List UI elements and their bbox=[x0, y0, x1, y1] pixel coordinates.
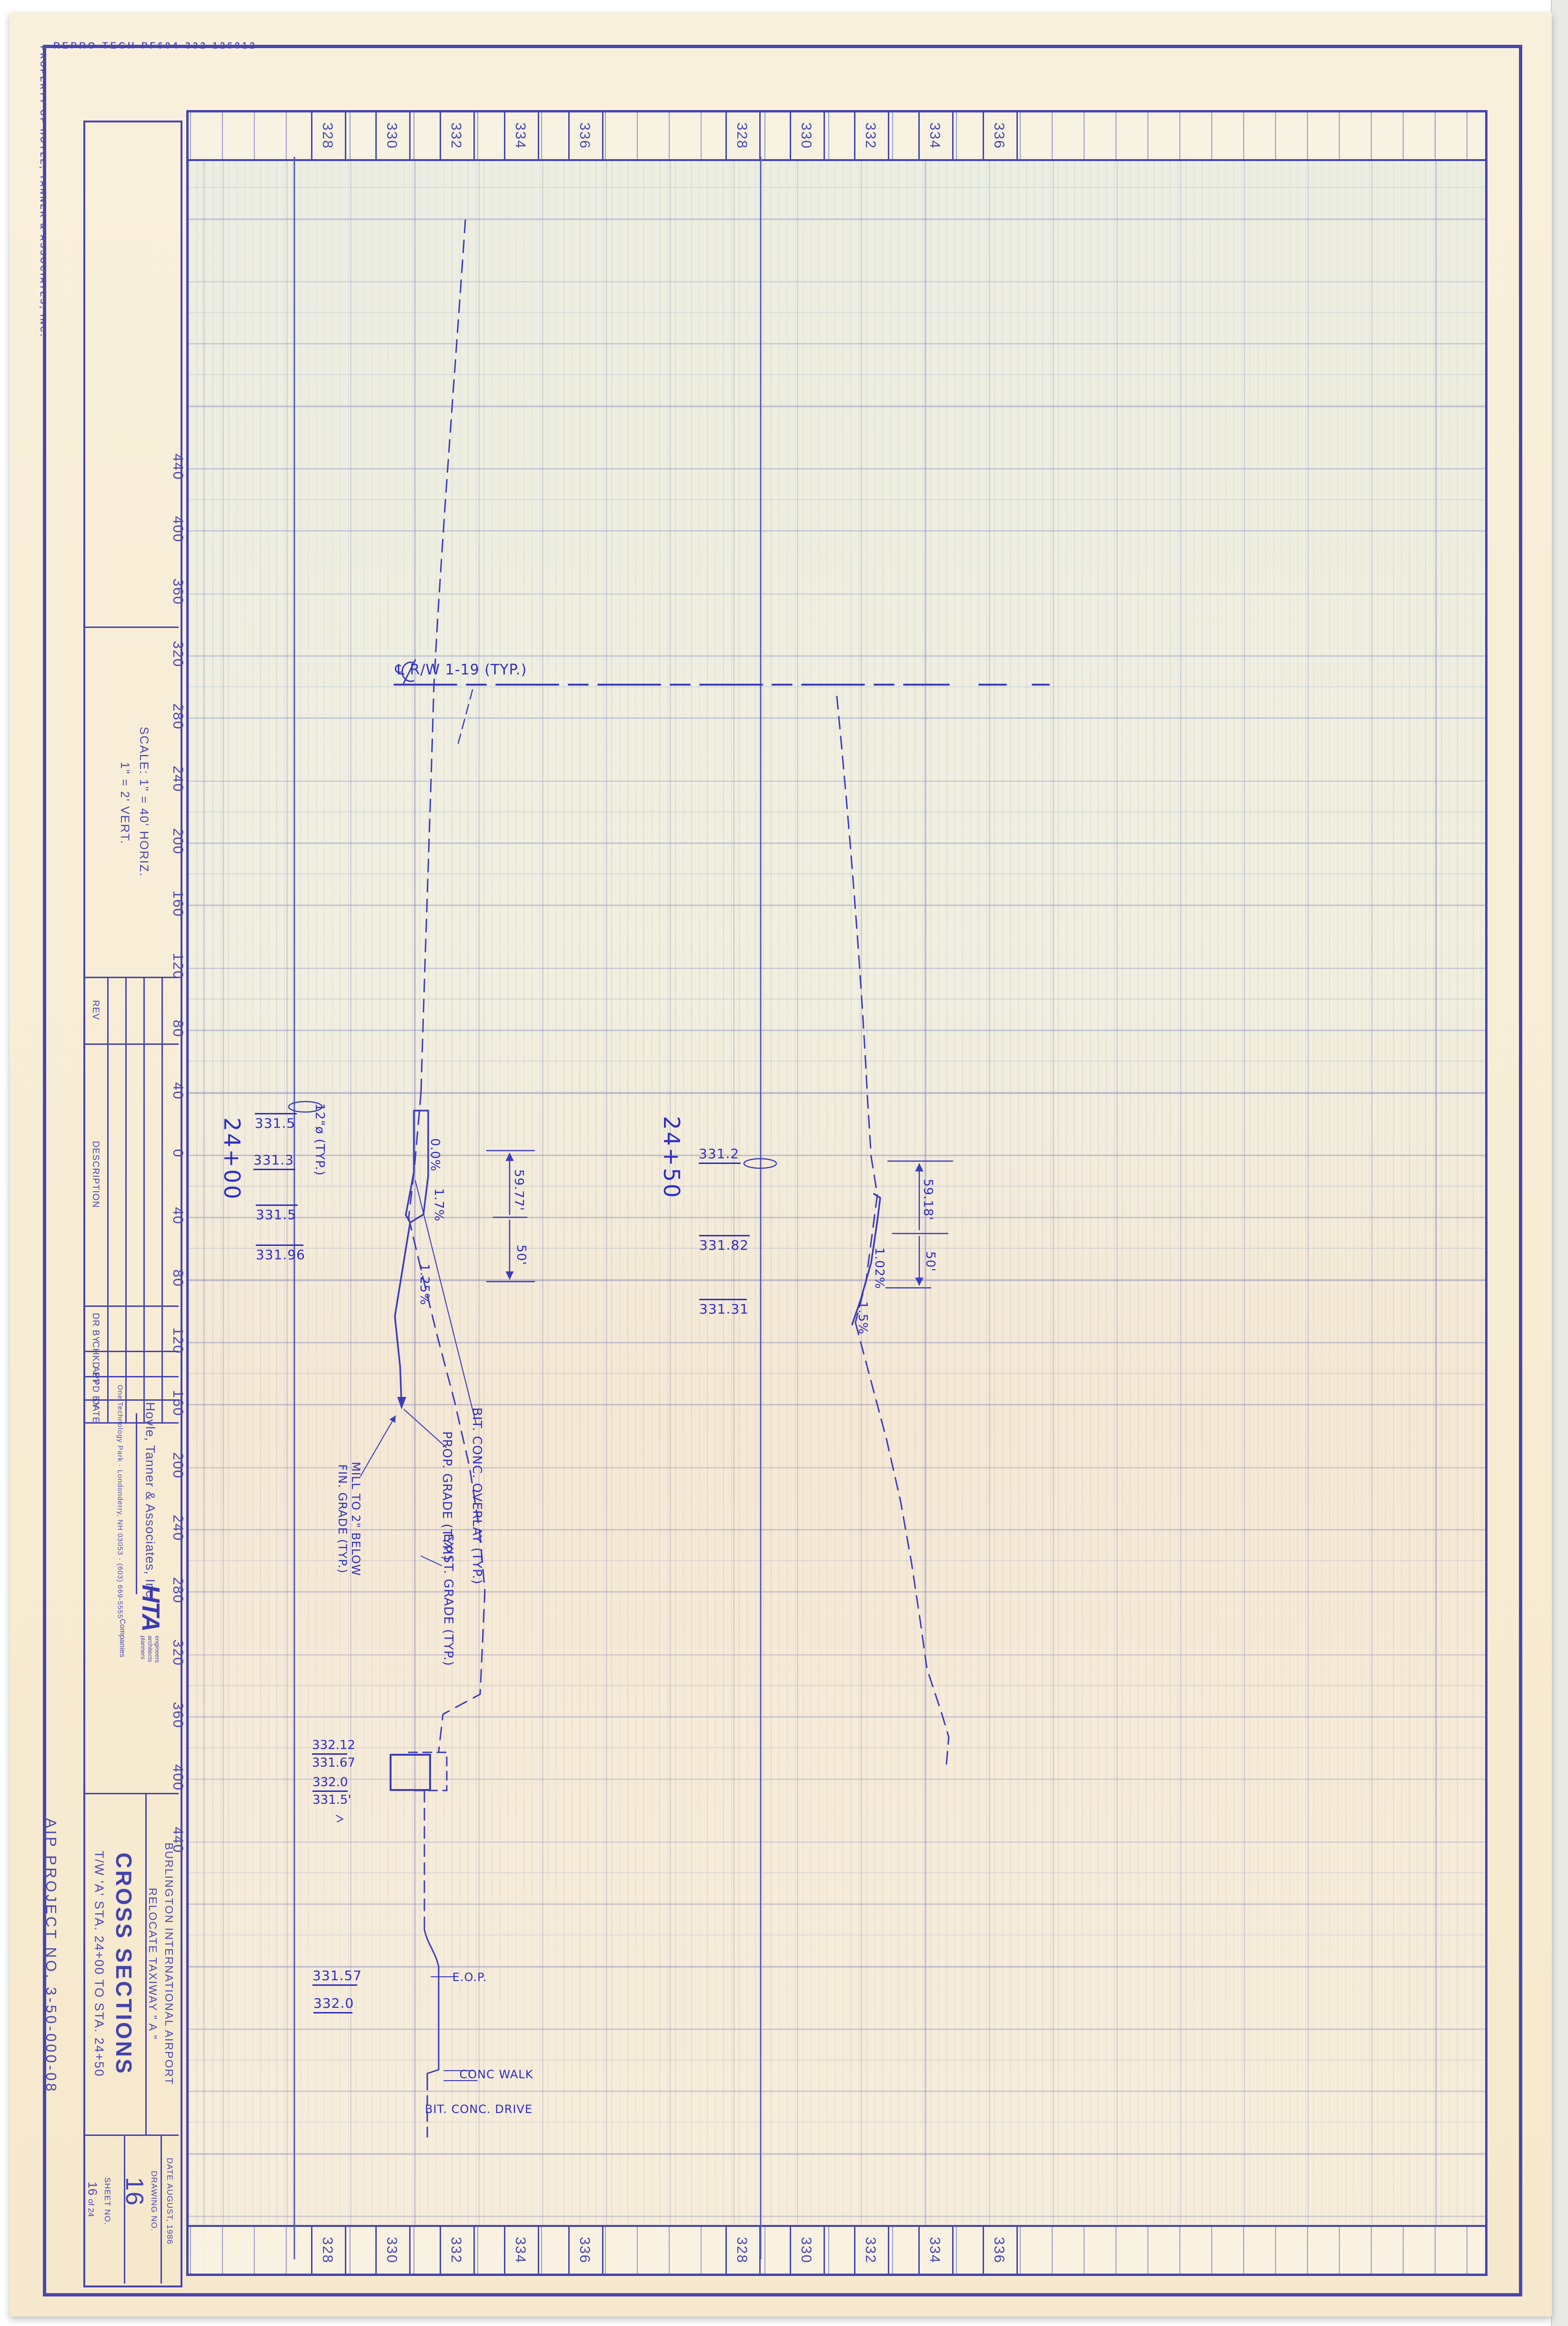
tb-vline bbox=[143, 977, 145, 1422]
sheet-of: of 24 bbox=[87, 2199, 96, 2217]
stacked-tag-culv_2: 332.0331.5' bbox=[312, 1775, 348, 1807]
annotation-rw_label: ℄ R/W 1-19 (TYP.) bbox=[395, 662, 527, 678]
tb-vline bbox=[125, 977, 127, 1422]
annotation-dim_2450_b: 50' bbox=[923, 1251, 937, 1272]
date-value: AUGUST, 1986 bbox=[165, 2184, 174, 2245]
offset-axis-label: 440 bbox=[170, 454, 186, 480]
annotation-dim_2450_a: 59.18' bbox=[921, 1179, 935, 1221]
offset-axis-label: 360 bbox=[170, 1702, 186, 1729]
offset-axis-label: 40 bbox=[170, 1082, 186, 1100]
offset-axis-label: 280 bbox=[170, 1577, 186, 1604]
offset-axis-label: 200 bbox=[170, 1452, 186, 1479]
annotation-sta_2400: 24+00 bbox=[219, 1117, 245, 1201]
offset-axis-label: 440 bbox=[170, 1827, 186, 1853]
rev-header-dr-by: DR BY bbox=[90, 1313, 101, 1343]
stacked-tag-culv_1: 332.12331.67 bbox=[312, 1738, 347, 1770]
tb-vline bbox=[107, 977, 109, 1422]
companies-label: Companies bbox=[118, 1619, 126, 1658]
offset-axis-label: 400 bbox=[170, 1764, 186, 1791]
company-name: Hoyle, Tanner & Associates, Inc. bbox=[143, 1402, 158, 1602]
stacked-bottom: 331.67 bbox=[312, 1755, 347, 1770]
offset-axis-label: 120 bbox=[170, 953, 186, 980]
tb-hline bbox=[83, 2134, 179, 2136]
annotation-sta_2450: 24+50 bbox=[659, 1116, 684, 1200]
annotation-note_walk: CONC WALK bbox=[460, 2068, 533, 2081]
sheet-subtitle: T/W 'A' STA. 24+00 TO STA. 24+50 bbox=[92, 1851, 107, 2077]
annotation-slope_2400_a: 0.0% bbox=[428, 1138, 442, 1172]
offset-axis-label: 320 bbox=[170, 1639, 186, 1666]
elevation-tag-el2450_2: 331.82 bbox=[699, 1235, 750, 1253]
elevation-tag-el2400_2: 331.3 bbox=[253, 1152, 295, 1170]
tb-vline bbox=[124, 2134, 125, 2284]
elevation-tag-el2400_4: 331.96 bbox=[256, 1244, 303, 1263]
exist-grade-24+50 bbox=[837, 697, 949, 1764]
offset-axis-label: 160 bbox=[170, 1390, 186, 1416]
annotation-pipe_2400: 12"ø (TYP.) bbox=[312, 1103, 327, 1176]
sheet-no-label: SHEET NO. bbox=[102, 2177, 112, 2225]
grade-arrowhead bbox=[397, 1397, 406, 1409]
date-field: DATE AUGUST, 1986 bbox=[165, 2158, 174, 2245]
offset-axis-label: 280 bbox=[170, 703, 186, 730]
scanned-drawing-sheet: REPRO TECH PF604-332 126012 PROPERTY OF … bbox=[0, 0, 1568, 2326]
annotation-slope_2400_b: 1.7% bbox=[432, 1188, 446, 1222]
offset-axis-label: 120 bbox=[170, 1327, 186, 1354]
tb-hline bbox=[83, 977, 179, 978]
tb-hline bbox=[83, 627, 179, 628]
tb-hline bbox=[83, 1793, 179, 1794]
stacked-top: 332.12 bbox=[312, 1738, 347, 1755]
offset-axis-label: 360 bbox=[170, 578, 186, 605]
elevation-tag-road_1: 331.57 bbox=[312, 1968, 357, 1986]
annotation-note_mill: MILL TO 2" BELOW FIN. GRADE (TYP.) bbox=[336, 1462, 362, 1576]
tb-vline bbox=[161, 2134, 162, 2284]
culvert-box-dashed bbox=[409, 1752, 447, 1790]
annotation-note_eop: E.O.P. bbox=[452, 1971, 487, 1984]
tb-hline bbox=[83, 1043, 179, 1045]
tb-hline bbox=[83, 1305, 179, 1307]
offset-axis-label: 400 bbox=[170, 516, 186, 543]
exist-grade-crossing bbox=[458, 690, 472, 743]
sheet-title: CROSS SECTIONS bbox=[111, 1852, 137, 2075]
rev-header-description: DESCRIPTION bbox=[90, 1141, 101, 1208]
project-name: BURLINGTON INTERNATIONAL AIRPORT RELOCAT… bbox=[145, 1842, 177, 2085]
mill-leader bbox=[361, 1416, 395, 1476]
elevation-tag-el2450_3: 331.31 bbox=[699, 1299, 747, 1317]
annotation-note_drive: BIT. CONC. DRIVE bbox=[425, 2103, 533, 2116]
offset-axis-label: 80 bbox=[170, 1269, 186, 1287]
offset-axis-label: 40 bbox=[170, 1207, 186, 1224]
elevation-tag-road_2: 332.0 bbox=[313, 1995, 352, 2013]
offset-axis-label: 320 bbox=[170, 641, 186, 667]
drawing-no-label: DRAWING NO. bbox=[149, 2171, 159, 2231]
small-tick bbox=[336, 1815, 343, 1822]
paper-sheet: REPRO TECH PF604-332 126012 PROPERTY OF … bbox=[10, 12, 1552, 2316]
project-relocate: RELOCATE TAXIWAY " A " bbox=[145, 1842, 161, 2085]
company-address: One Technology Park · Londonderry, NH 03… bbox=[116, 1385, 124, 1618]
company-rule bbox=[136, 1413, 137, 1594]
offset-axis-label: 160 bbox=[170, 890, 186, 917]
date-label: DATE bbox=[165, 2158, 174, 2181]
exist-grade-leader bbox=[421, 1556, 442, 1566]
elevation-tag-el2450_1: 331.2 bbox=[699, 1146, 741, 1164]
offset-axis-label: 0 bbox=[170, 1149, 186, 1158]
elevation-tag-el2400_3: 331.5 bbox=[256, 1204, 298, 1223]
rev-header-rev: REV bbox=[90, 1000, 101, 1020]
annotation-slope_2450_a: 1.02% bbox=[872, 1247, 886, 1289]
hta-logo-tags: engineersarchitectsplanners bbox=[140, 1636, 161, 1663]
offset-axis-label: 240 bbox=[170, 766, 186, 792]
annotation-note_overlay: BIT. CONC. OVERLAY (TYP.) bbox=[470, 1407, 484, 1585]
elevation-tag-el2400_1: 331.5 bbox=[255, 1113, 297, 1131]
annotation-slope_2450_b: 1.5% bbox=[855, 1301, 870, 1335]
tb-vline bbox=[161, 977, 163, 1422]
offset-axis-label: 200 bbox=[170, 828, 186, 855]
sheet-number: 16 bbox=[86, 2182, 100, 2195]
sheet-no-value: 16 of 24 bbox=[85, 2182, 100, 2217]
eop-profile bbox=[424, 1930, 439, 2080]
scale-horiz: SCALE: 1" = 40' HORIZ. bbox=[134, 727, 153, 877]
culvert-box bbox=[391, 1755, 430, 1790]
prop-grade-24+00 bbox=[395, 1223, 410, 1405]
stacked-bottom: 331.5' bbox=[312, 1792, 348, 1807]
airport-name: BURLINGTON INTERNATIONAL AIRPORT bbox=[161, 1842, 177, 2085]
offset-axis-label: 80 bbox=[170, 1020, 186, 1037]
annotation-note_exist: EXIST. GRADE (TYP.) bbox=[441, 1534, 455, 1666]
drawing-no-value: 16 bbox=[120, 2177, 149, 2206]
scale-vert: 1" = 2' VERT. bbox=[115, 727, 134, 877]
overlay-pavement-24+00 bbox=[406, 1111, 428, 1223]
hta-logo: HTA engineersarchitectsplanners bbox=[136, 1585, 165, 1663]
offset-axis-label: 240 bbox=[170, 1515, 186, 1541]
annotation-dim_2400_b: 50' bbox=[514, 1244, 528, 1265]
annotation-dim_2400_a: 59.77' bbox=[512, 1169, 526, 1211]
stacked-top: 332.0 bbox=[312, 1775, 348, 1792]
hta-logo-text: HTA bbox=[136, 1585, 165, 1631]
rev-header-date: DATE bbox=[90, 1398, 101, 1423]
scale-note: SCALE: 1" = 40' HORIZ. 1" = 2' VERT. bbox=[115, 727, 153, 877]
annotation-slope_2400_c: 1.25% bbox=[417, 1264, 432, 1305]
